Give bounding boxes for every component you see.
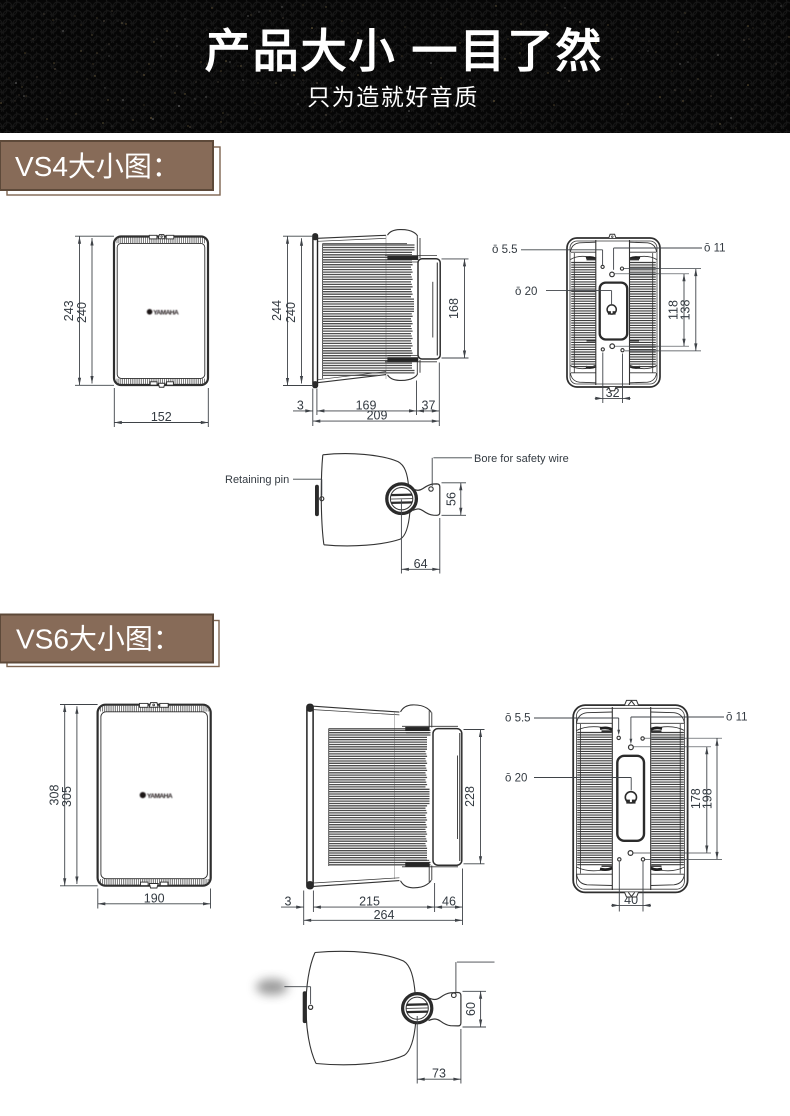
svg-text:VS4大小图：: VS4大小图： — [15, 151, 180, 182]
svg-text:152: 152 — [151, 410, 172, 424]
svg-text:190: 190 — [144, 891, 165, 905]
svg-text:168: 168 — [447, 298, 461, 319]
svg-text:305: 305 — [60, 786, 74, 807]
svg-text:3: 3 — [285, 895, 292, 909]
svg-text:198: 198 — [701, 788, 715, 809]
svg-text:215: 215 — [359, 895, 380, 909]
svg-text:56: 56 — [444, 492, 458, 506]
svg-text:3: 3 — [297, 398, 304, 412]
svg-text:228: 228 — [463, 786, 477, 807]
svg-text:73: 73 — [432, 1067, 446, 1081]
svg-text:ō 5.5: ō 5.5 — [492, 244, 518, 256]
svg-text:ō 11: ō 11 — [726, 712, 748, 724]
svg-text:209: 209 — [367, 409, 388, 423]
svg-text:产品大小 一目了然: 产品大小 一目了然 — [205, 25, 604, 77]
svg-text:46: 46 — [442, 895, 456, 909]
svg-text:ō 5.5: ō 5.5 — [505, 713, 531, 725]
svg-text:60: 60 — [464, 1002, 478, 1016]
svg-text:ō 11: ō 11 — [704, 243, 726, 255]
svg-text:Retaining pin: Retaining pin — [225, 474, 289, 486]
svg-text:264: 264 — [374, 908, 395, 922]
svg-text:240: 240 — [75, 302, 89, 323]
svg-text:YAMAHA: YAMAHA — [153, 310, 179, 317]
svg-text:Bore for safety wire: Bore for safety wire — [474, 453, 569, 465]
svg-text:YAMAHA: YAMAHA — [147, 793, 173, 800]
svg-text:VS6大小图：: VS6大小图： — [16, 624, 181, 655]
svg-text:37: 37 — [422, 398, 436, 412]
svg-text:ō 20: ō 20 — [505, 773, 527, 785]
svg-text:64: 64 — [414, 557, 428, 571]
svg-text:只为造就好音质: 只为造就好音质 — [307, 84, 479, 110]
svg-text:138: 138 — [678, 300, 692, 321]
svg-text:ō 20: ō 20 — [515, 286, 537, 298]
svg-text:240: 240 — [284, 302, 298, 323]
svg-text:244: 244 — [270, 300, 284, 321]
